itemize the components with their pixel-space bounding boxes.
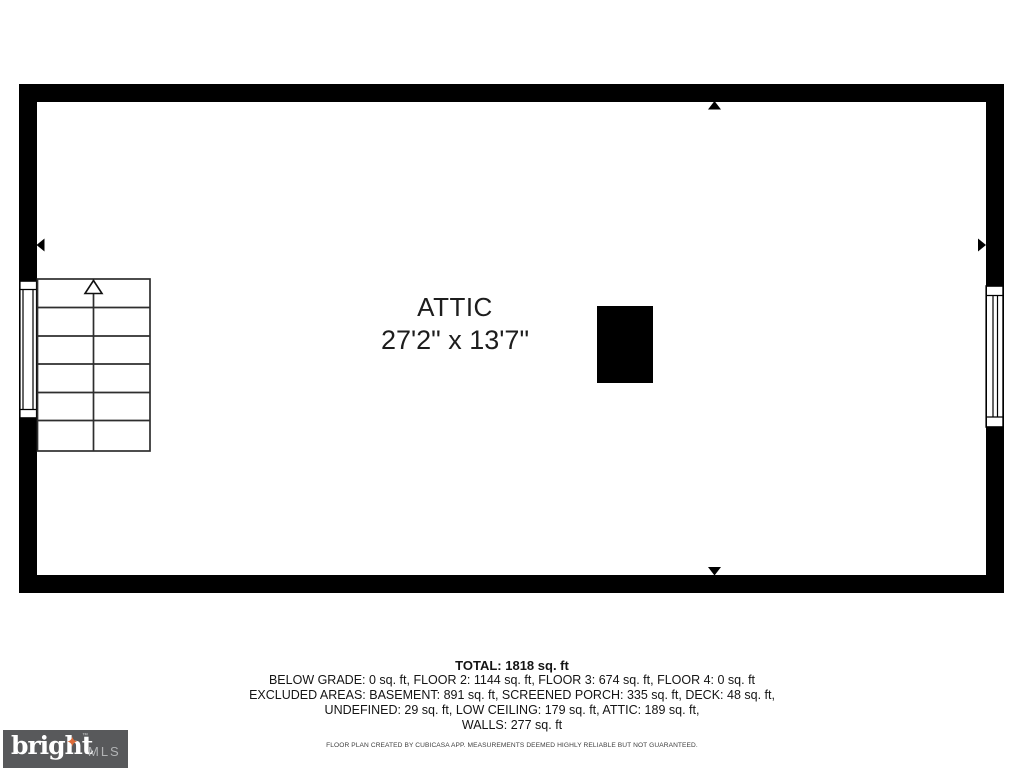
excluded-areas-text: EXCLUDED AREAS: BASEMENT: 891 sq. ft, SC… xyxy=(0,688,1024,703)
disclaimer-text: FLOOR PLAN CREATED BY CUBICASA APP. MEAS… xyxy=(0,742,1024,749)
excluded-areas-text-2: UNDEFINED: 29 sq. ft, LOW CEILING: 179 s… xyxy=(0,703,1024,718)
wall-marker-left-icon xyxy=(37,239,45,252)
logo-trademark-symbol: ™ xyxy=(82,733,88,739)
window-left-icon xyxy=(20,281,37,418)
wall-marker-bottom-icon xyxy=(708,567,721,576)
chimney-block xyxy=(597,306,653,383)
logo-brand-text: bright xyxy=(11,731,92,760)
room-dimensions-label: 27'2" x 13'7" xyxy=(305,325,605,356)
walls-area-text: WALLS: 277 sq. ft xyxy=(0,718,1024,733)
logo-star-icon: ✦ xyxy=(66,733,79,751)
wall-marker-top-icon xyxy=(708,101,721,110)
bright-mls-logo: bright ✦ ™ MLS xyxy=(3,730,128,768)
room-name-label: ATTIC xyxy=(305,292,605,323)
floor-areas-text: BELOW GRADE: 0 sq. ft, FLOOR 2: 1144 sq.… xyxy=(0,673,1024,688)
staircase xyxy=(38,279,151,451)
area-summary: TOTAL: 1818 sq. ft BELOW GRADE: 0 sq. ft… xyxy=(0,658,1024,733)
total-area-text: TOTAL: 1818 sq. ft xyxy=(0,658,1024,673)
window-right-icon xyxy=(986,286,1003,427)
logo-suffix-text: MLS xyxy=(88,744,121,759)
wall-marker-right-icon xyxy=(978,239,986,252)
